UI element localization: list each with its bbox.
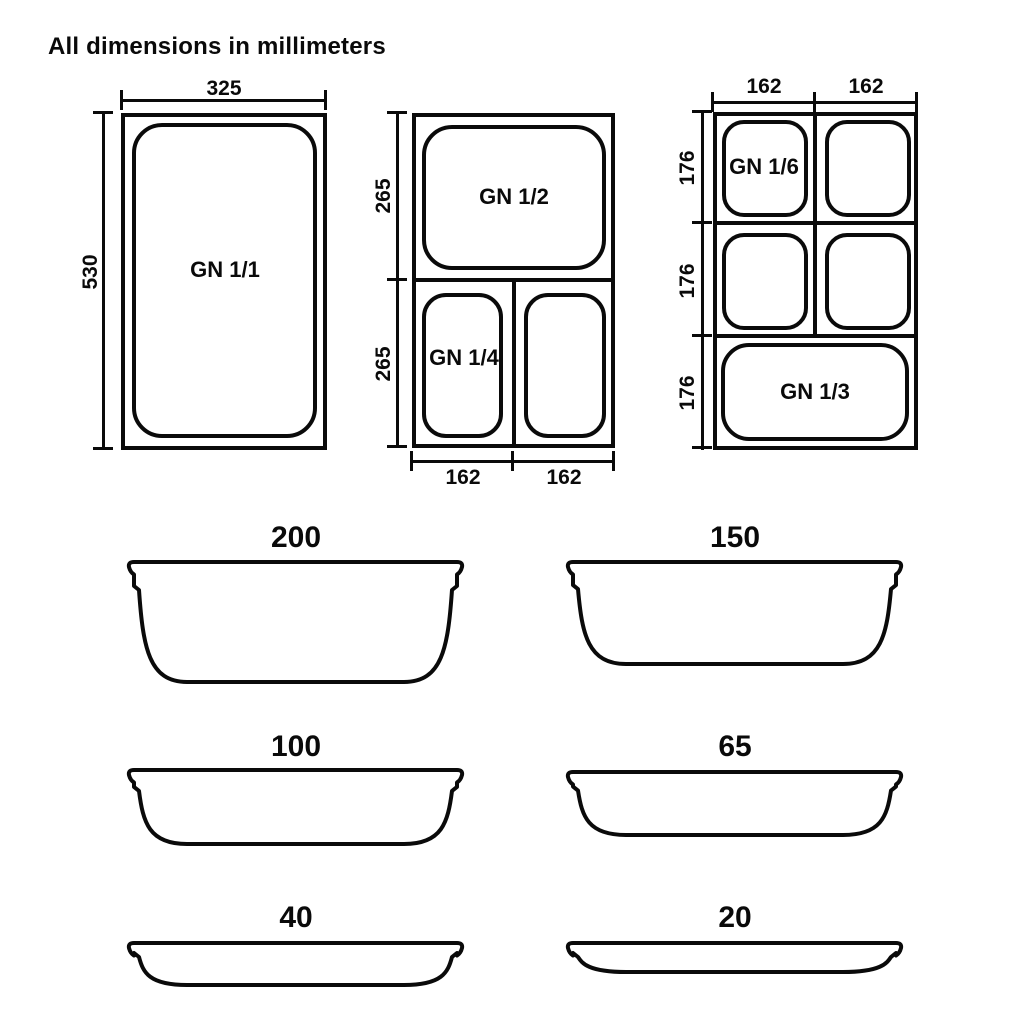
depth-label-65: 65 <box>718 730 751 764</box>
dim-tick <box>387 445 407 448</box>
gn14-pan-outline-unlabeled <box>524 293 606 438</box>
pan-profile-40 <box>125 940 466 989</box>
pan-profile-outline <box>129 562 462 682</box>
dim-tick <box>612 451 615 471</box>
pan-profile-outline <box>568 943 901 972</box>
gn12-height-dim-label: 265 <box>372 178 396 213</box>
dim-tick <box>692 446 712 449</box>
dim-tick <box>387 111 407 114</box>
gn11-height-dim-label: 530 <box>79 254 103 289</box>
dim-tick <box>93 447 113 450</box>
gn14-label: GN 1/4 <box>429 345 499 371</box>
dim-tick <box>915 92 918 112</box>
gn11-width-dim-line <box>121 99 327 102</box>
row3-height-dim-label: 176 <box>676 375 700 410</box>
pan-profile-150 <box>564 559 905 668</box>
gn16-pan-outline <box>825 233 911 330</box>
pan-profile-outline <box>568 562 901 664</box>
dim-tick <box>324 90 327 110</box>
sixth-width-dim-label-right: 162 <box>848 75 883 99</box>
gn16-pan-outline <box>825 120 911 217</box>
sixth-third-column-divider <box>813 112 817 338</box>
dim-tick <box>692 334 712 337</box>
dim-tick <box>692 110 712 113</box>
page-title: All dimensions in millimeters <box>48 33 386 61</box>
quarter-width-dim-label-left: 162 <box>445 466 480 490</box>
pan-profile-outline <box>129 770 462 844</box>
depth-label-100: 100 <box>271 730 321 764</box>
sixth-width-dim-label-left: 162 <box>746 75 781 99</box>
depth-label-40: 40 <box>279 901 312 935</box>
half-quarter-vertical-divider <box>512 280 516 448</box>
depth-label-200: 200 <box>271 521 321 555</box>
row2-height-dim-label: 176 <box>676 263 700 298</box>
diagram-canvas: All dimensions in millimeters 325 530 GN… <box>0 0 1024 1024</box>
sixth-third-height-dim-line <box>701 112 704 450</box>
dim-tick <box>511 451 514 471</box>
pan-profile-100 <box>125 767 466 848</box>
gn13-label: GN 1/3 <box>780 379 850 405</box>
dim-tick <box>387 278 407 281</box>
dim-tick <box>93 111 113 114</box>
gn14-height-dim-label: 265 <box>372 346 396 381</box>
pan-profile-outline <box>129 943 462 985</box>
pan-profile-65 <box>564 769 905 839</box>
pan-profile-outline <box>568 772 901 835</box>
gn16-label: GN 1/6 <box>729 154 799 180</box>
dim-tick <box>120 90 123 110</box>
gn11-width-dim-label: 325 <box>206 77 241 101</box>
depth-label-20: 20 <box>718 901 751 935</box>
quarter-width-dim-label-right: 162 <box>546 466 581 490</box>
dim-tick <box>692 221 712 224</box>
gn16-pan-outline <box>722 233 808 330</box>
pan-profile-200 <box>125 559 466 686</box>
gn12-label: GN 1/2 <box>479 184 549 210</box>
depth-label-150: 150 <box>710 521 760 555</box>
dim-tick <box>711 92 714 112</box>
dim-tick <box>813 92 816 112</box>
gn11-height-dim-line <box>102 113 105 450</box>
gn11-label: GN 1/1 <box>190 257 260 283</box>
dim-tick <box>410 451 413 471</box>
row1-height-dim-label: 176 <box>676 150 700 185</box>
pan-profile-20 <box>564 940 905 976</box>
